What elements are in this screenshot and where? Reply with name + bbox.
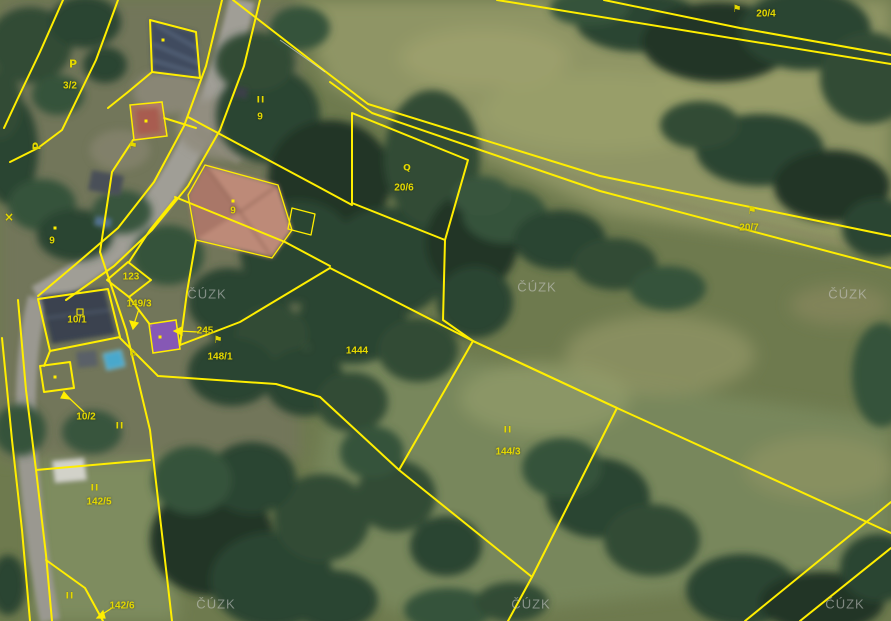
cuzk-watermark: ČÚZK bbox=[187, 287, 226, 302]
parcel-label-149-3: 149/3 bbox=[126, 299, 151, 310]
cuzk-watermark: ČÚZK bbox=[828, 287, 867, 302]
orchard-icon: P bbox=[32, 142, 43, 150]
parcel-label-20-6: 20/6 bbox=[394, 183, 413, 194]
parcel-label-245: 245 bbox=[197, 326, 214, 337]
parcel-label-142-5: 142/5 bbox=[86, 497, 111, 508]
parcel-label-9: 9 bbox=[257, 112, 263, 123]
meadow-icon: II bbox=[91, 485, 100, 494]
boundary-dot bbox=[162, 39, 165, 42]
orchard-icon: P bbox=[69, 59, 77, 70]
parcel-label-20-7: 20/7 bbox=[739, 223, 758, 234]
cuzk-watermark: ČÚZK bbox=[825, 597, 864, 612]
meadow-icon: II bbox=[66, 593, 75, 602]
parcel-label-3-2: 3/2 bbox=[63, 81, 77, 92]
parcel-label-1444: 1444 bbox=[346, 346, 368, 357]
boundary-dot bbox=[54, 227, 57, 230]
meadow-icon: II bbox=[257, 97, 266, 106]
parcel-label-9: 9 bbox=[230, 206, 236, 217]
parcel-label-10-2: 10/2 bbox=[76, 412, 95, 423]
parcel-label-9: 9 bbox=[49, 236, 55, 247]
meadow-icon: II bbox=[116, 423, 125, 432]
boundary-cross-icon: × bbox=[4, 211, 14, 223]
cadastral-map-viewport[interactable]: 3/299920/420/620/71444144/3142/5142/6149… bbox=[0, 0, 891, 621]
cuzk-watermark: ČÚZK bbox=[511, 597, 550, 612]
boundary-dot bbox=[54, 376, 57, 379]
scrub-icon: Q bbox=[403, 165, 411, 174]
cuzk-watermark: ČÚZK bbox=[517, 280, 556, 295]
map-annotation-layer: 3/299920/420/620/71444144/3142/5142/6149… bbox=[0, 0, 891, 621]
house-icon: ⌂ bbox=[130, 347, 137, 358]
parcel-label-20-4: 20/4 bbox=[756, 9, 775, 20]
boundary-dot bbox=[145, 120, 148, 123]
parcel-label-148-1: 148/1 bbox=[207, 352, 232, 363]
forest-icon: ⚑ bbox=[214, 336, 223, 346]
boundary-dot bbox=[159, 336, 162, 339]
meadow-icon: II bbox=[504, 427, 513, 436]
forest-icon: ⚑ bbox=[748, 207, 757, 217]
forest-icon: ⚑ bbox=[733, 5, 742, 15]
forest-icon: ⚑ bbox=[129, 142, 138, 152]
parcel-label-123: 123 bbox=[123, 272, 140, 283]
boundary-dot bbox=[232, 200, 235, 203]
parcel-label-142-6: 142/6 bbox=[109, 601, 134, 612]
cuzk-watermark: ČÚZK bbox=[196, 597, 235, 612]
parcel-label-10-1: 10/1 bbox=[67, 315, 86, 326]
parcel-label-144-3: 144/3 bbox=[495, 447, 520, 458]
building-mark-icon bbox=[77, 309, 84, 316]
